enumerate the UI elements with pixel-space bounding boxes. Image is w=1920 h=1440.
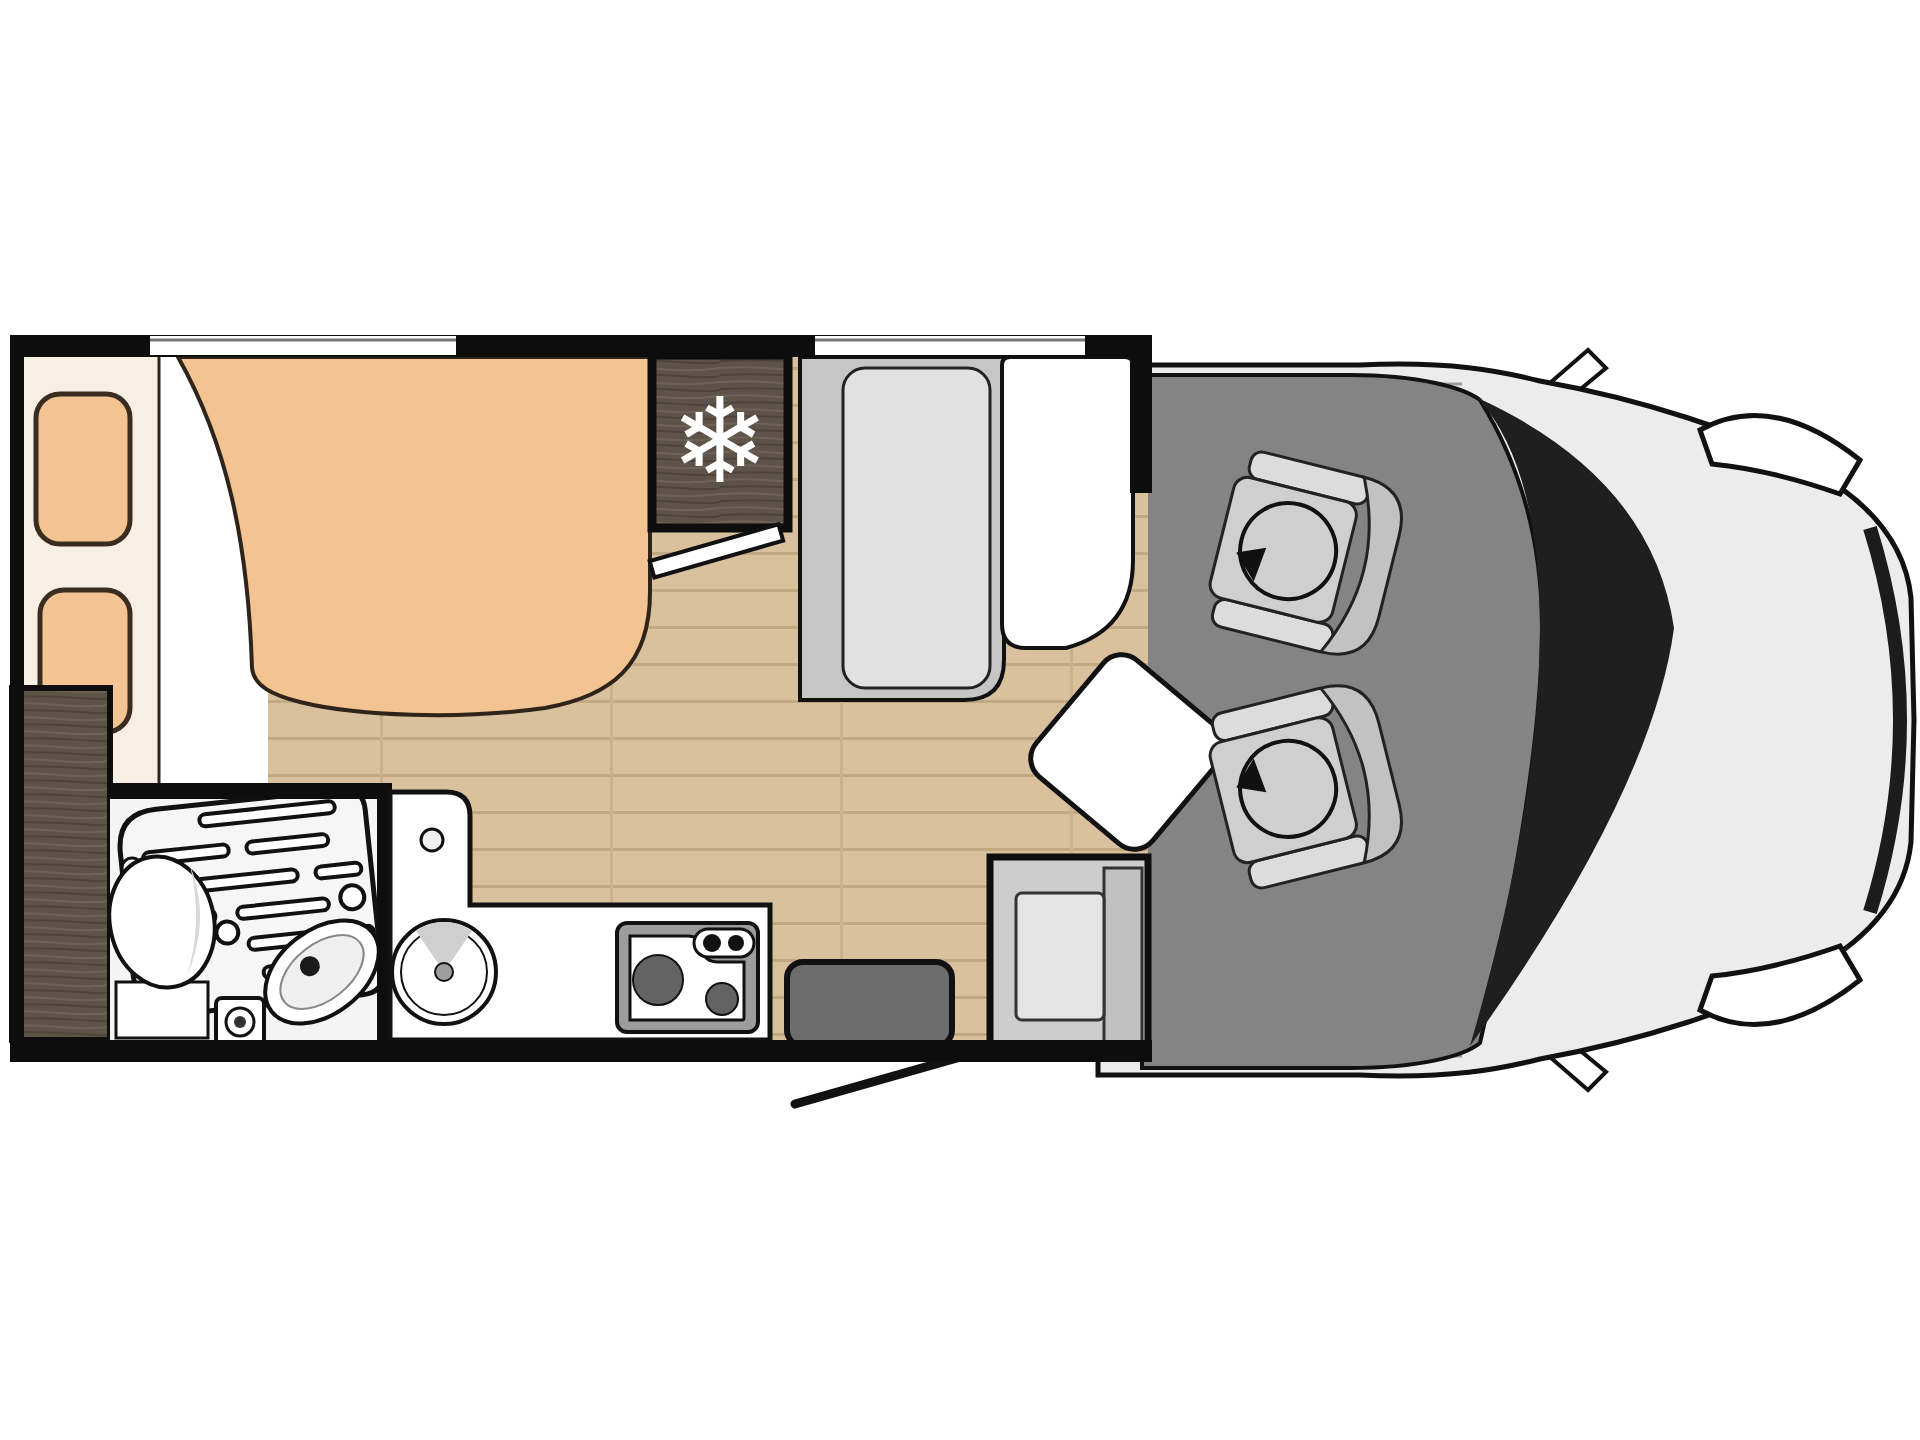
- hob-burner-small: [706, 983, 738, 1015]
- bathroom-wall-top: [110, 783, 392, 799]
- entry-door-open: [795, 1058, 957, 1104]
- bath-fixture-dot: [234, 1016, 246, 1028]
- cabinet-strip: [1104, 868, 1142, 1046]
- hob-knob-1: [703, 934, 721, 952]
- side-seat-cabinet: [990, 857, 1148, 1057]
- bench-panel: [843, 368, 990, 688]
- top-window-dinette: [815, 336, 1085, 355]
- wardrobe-cabinet: [12, 688, 110, 1040]
- wall-bottom: [10, 1040, 1152, 1062]
- hob-knob-2: [728, 935, 744, 951]
- wall-left: [10, 335, 24, 1062]
- floorplan-canvas: ❄: [0, 0, 1920, 1440]
- kitchen-sink-drain: [435, 963, 453, 981]
- toilet-pedestal: [116, 982, 208, 1038]
- kitchen-faucet: [421, 829, 443, 851]
- bench-cushion: [1002, 357, 1133, 648]
- top-window-bed: [150, 336, 456, 355]
- hob-burner-large: [633, 955, 683, 1005]
- floorplan-svg: ❄: [0, 0, 1920, 1440]
- snowflake-icon: ❄: [671, 372, 770, 510]
- bathroom: [97, 783, 398, 1046]
- entry: [787, 962, 957, 1104]
- bedroom-window-1: [36, 394, 130, 544]
- wall-right-stub: [1130, 335, 1152, 493]
- fridge: ❄: [652, 355, 788, 528]
- entry-step: [787, 962, 952, 1046]
- cabinet-panel: [1016, 893, 1104, 1020]
